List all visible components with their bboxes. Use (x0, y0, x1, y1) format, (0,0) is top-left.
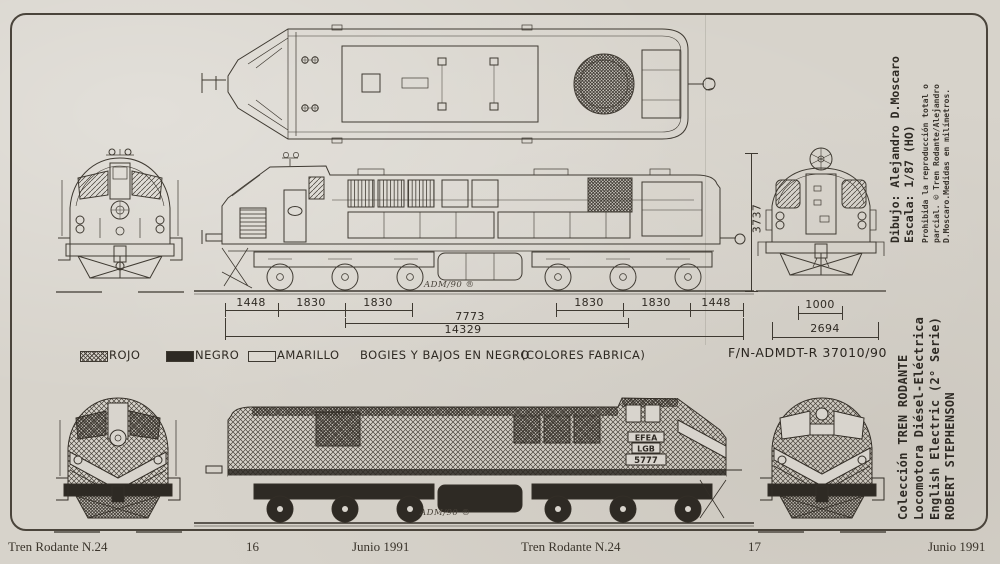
side-view-line-drawing (198, 140, 750, 296)
dim-line-right-chain (556, 310, 743, 311)
rear-view-line-drawing (756, 146, 886, 298)
front-view-line-drawing (56, 146, 184, 298)
dim-label-width: 2694 (810, 322, 840, 335)
dim-line-total-length (225, 336, 743, 337)
credit-scale: Escala: 1/87 (HO) (902, 23, 916, 243)
legend-swatch-negro (166, 351, 194, 362)
dim-label: 1830 (296, 296, 326, 309)
drawing-reference-code: F/N-ADMDT-R 37010/90 (728, 345, 887, 360)
legend-label-negro: NEGRO (195, 348, 239, 362)
collection-loco-type: Locomotora Diésel-Eléctrica (912, 272, 928, 520)
cab-plate-railway: EFEA (635, 434, 658, 443)
collection-block: Colección TREN RODANTE Locomotora Diésel… (896, 272, 959, 520)
side-view-livery-drawing: EFEA LGB 5777 (198, 372, 750, 528)
dim-line-gauge (798, 313, 842, 314)
footer-right-date: Junio 1991 (928, 539, 985, 555)
legend-note-colores: (COLORES FABRICA) (521, 348, 645, 362)
footer-right-page-number: 17 (748, 539, 761, 555)
footer-left-date: Junio 1991 (352, 539, 409, 555)
legend-label-amarillo: AMARILLO (277, 348, 340, 362)
artist-signature-top: ADM/90 ® (424, 280, 475, 290)
footer-left-title: Tren Rodante N.24 (8, 539, 108, 555)
magazine-spread: { "dimensions": { "left_chain": ["1448",… (0, 0, 1000, 564)
footer-left-page-number: 16 (246, 539, 259, 555)
legend-swatch-rojo (80, 351, 108, 362)
dim-line-width (772, 337, 878, 338)
dim-label: 1448 (701, 296, 731, 309)
legend-note-bogies: BOGIES Y BAJOS EN NEGRO (360, 348, 530, 362)
collection-builder2: ROBERT STEPHENSON (943, 272, 959, 520)
dim-line-bogie-centres (345, 323, 628, 324)
dim-label-bogie-centres: 7773 (455, 310, 485, 323)
plan-view-drawing (192, 20, 726, 148)
front-view-livery-right-drawing (758, 386, 886, 538)
cab-plate-number: 5777 (634, 456, 658, 466)
front-view-livery-drawing (54, 386, 182, 538)
dim-label: 1830 (363, 296, 393, 309)
dim-label-total-length: 14329 (445, 323, 482, 336)
dim-label: 1830 (574, 296, 604, 309)
dim-label-gauge: 1000 (805, 298, 835, 311)
dim-label-height: 3737 (750, 204, 763, 234)
legend-swatch-amarillo (248, 351, 276, 362)
cab-plate-line: LGB (637, 445, 655, 454)
credit-artist: Dibujo: Alejandro D.Moscaro (888, 23, 902, 243)
dim-label: 1830 (641, 296, 671, 309)
legal-line-2: parcial. © Tren Rodante/Alejandro (932, 23, 943, 243)
credit-block: Dibujo: Alejandro D.Moscaro Escala: 1/87… (888, 23, 953, 243)
legal-line-1: Prohibida la reproducción total o (921, 23, 932, 243)
artist-signature-bottom: ADM/90 ® (420, 508, 471, 518)
dim-line-left-chain (225, 310, 412, 311)
collection-title: Colección TREN RODANTE (896, 272, 912, 520)
collection-builder: English Electric (2° Serie) (928, 272, 944, 520)
footer-right-title: Tren Rodante N.24 (521, 539, 621, 555)
legal-line-3: D.Moscaro.Medidas en milímetros. (942, 23, 953, 243)
dim-label: 1448 (236, 296, 266, 309)
legend-label-rojo: ROJO (109, 348, 141, 362)
